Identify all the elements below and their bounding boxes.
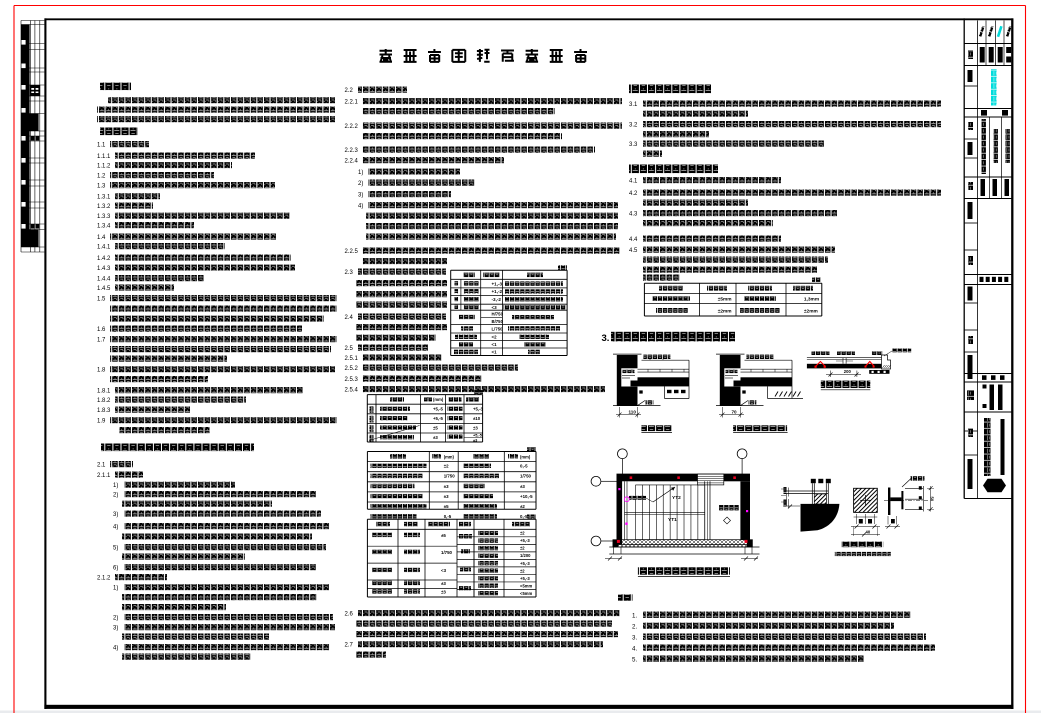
svg-text:+1,-2: +1,-2 <box>492 289 503 294</box>
svg-text:B/750: B/750 <box>492 319 504 324</box>
svg-text:+5,-3: +5,-3 <box>520 538 530 543</box>
svg-text:+5,-5: +5,-5 <box>433 406 444 411</box>
svg-text:1): 1) <box>113 586 118 592</box>
svg-text:2.: 2. <box>632 623 637 630</box>
svg-text:2.1.1: 2.1.1 <box>97 473 111 479</box>
svg-text:L/750: L/750 <box>492 327 504 332</box>
svg-text:4): 4) <box>358 204 363 210</box>
svg-text:±10: ±10 <box>473 416 481 421</box>
svg-text:1.4: 1.4 <box>97 235 106 241</box>
svg-text:1/200: 1/200 <box>520 553 531 558</box>
svg-text:1.4.2: 1.4.2 <box>97 256 111 262</box>
svg-text:1.3.3: 1.3.3 <box>97 214 111 220</box>
svg-text:1.3.4: 1.3.4 <box>97 224 111 230</box>
svg-text:<1: <1 <box>492 342 498 347</box>
svg-text:1/750: 1/750 <box>441 550 453 555</box>
svg-text:1.7: 1.7 <box>97 338 106 344</box>
svg-text:4): 4) <box>113 525 118 531</box>
svg-text:<1: <1 <box>492 349 498 354</box>
svg-text:+5,-3: +5,-3 <box>473 406 484 411</box>
svg-text:2.1.2: 2.1.2 <box>97 576 111 582</box>
svg-text:1/750: 1/750 <box>444 474 456 479</box>
svg-text:±2mm: ±2mm <box>718 308 732 314</box>
svg-text:5.: 5. <box>632 656 637 663</box>
svg-text:±5: ±5 <box>441 533 446 538</box>
svg-text:0,-5: 0,-5 <box>520 514 528 519</box>
svg-text:2.3: 2.3 <box>345 270 354 276</box>
svg-text:2): 2) <box>113 493 118 499</box>
svg-text:3.1: 3.1 <box>629 102 638 108</box>
svg-text:(mm): (mm) <box>444 454 455 459</box>
svg-text:±3: ±3 <box>473 425 478 430</box>
svg-text:+5,-3: +5,-3 <box>520 576 530 581</box>
svg-text:1.1.2: 1.1.2 <box>97 164 111 170</box>
svg-text:1.6: 1.6 <box>97 327 106 333</box>
svg-text:4.: 4. <box>632 645 637 652</box>
svg-text:<3: <3 <box>441 568 447 573</box>
svg-text:3.2: 3.2 <box>629 123 638 129</box>
svg-text:+1,-3: +1,-3 <box>492 281 503 286</box>
svg-text:2.2.4: 2.2.4 <box>345 159 359 165</box>
svg-text:±3: ±3 <box>433 435 438 440</box>
svg-text:2.2.5: 2.2.5 <box>345 249 359 255</box>
svg-text:1.: 1. <box>632 612 637 619</box>
svg-text:YT1: YT1 <box>668 517 677 523</box>
svg-text:±3: ±3 <box>444 494 449 499</box>
svg-text:1): 1) <box>113 483 118 489</box>
svg-text:3.3: 3.3 <box>629 142 638 148</box>
svg-text:±3: ±3 <box>444 484 449 489</box>
svg-text:200: 200 <box>844 369 852 374</box>
svg-text:0,-5: 0,-5 <box>520 464 528 469</box>
svg-text:2.1: 2.1 <box>97 463 106 469</box>
svg-text:1.5: 1.5 <box>97 297 106 303</box>
svg-text:2): 2) <box>113 616 118 622</box>
svg-text:4.1: 4.1 <box>629 179 638 185</box>
svg-text:-3,-2: -3,-2 <box>492 297 502 302</box>
svg-text:3): 3) <box>113 512 118 518</box>
svg-text:2.2: 2.2 <box>345 88 354 94</box>
svg-text:<5mm: <5mm <box>520 591 532 596</box>
svg-text:2.5.4: 2.5.4 <box>345 388 359 394</box>
svg-text:4.5: 4.5 <box>629 248 638 254</box>
svg-text:2.5: 2.5 <box>345 346 354 352</box>
svg-text:±2: ±2 <box>520 546 525 551</box>
svg-text:3.: 3. <box>602 333 610 344</box>
svg-text:2.6: 2.6 <box>345 612 354 618</box>
svg-text:±5mm: ±5mm <box>718 297 732 303</box>
svg-text:6): 6) <box>113 566 118 572</box>
svg-text:(mm): (mm) <box>433 397 444 402</box>
svg-text:4.4: 4.4 <box>629 237 638 243</box>
svg-text:1.9: 1.9 <box>97 419 106 425</box>
svg-text:0,-5: 0,-5 <box>444 514 452 519</box>
svg-text:2.7: 2.7 <box>345 643 354 649</box>
svg-text:1.4.5: 1.4.5 <box>97 286 111 292</box>
svg-text:2.5.1: 2.5.1 <box>345 356 359 362</box>
svg-text:1.3: 1.3 <box>97 184 106 190</box>
svg-text:(mm): (mm) <box>520 454 531 459</box>
svg-text:2.2.1: 2.2.1 <box>345 100 359 106</box>
svg-text:2.5.3: 2.5.3 <box>345 377 359 383</box>
svg-text:2): 2) <box>358 181 363 187</box>
svg-text:H/750: H/750 <box>492 312 504 317</box>
svg-text:1.1: 1.1 <box>97 143 106 149</box>
svg-text:1.2: 1.2 <box>97 174 106 180</box>
svg-text:±3: ±3 <box>441 581 446 586</box>
svg-text:40: 40 <box>866 529 871 534</box>
svg-text:70: 70 <box>732 409 738 414</box>
svg-text:±2: ±2 <box>520 568 525 573</box>
svg-text:YT2: YT2 <box>672 495 681 501</box>
svg-text:1,3mm: 1,3mm <box>804 297 819 303</box>
svg-text:2.4: 2.4 <box>345 315 354 321</box>
svg-text:+5,-3: +5,-3 <box>520 561 530 566</box>
svg-text:±2mm: ±2mm <box>804 308 818 314</box>
svg-text:2.2.2: 2.2.2 <box>345 124 359 130</box>
svg-text:±2: ±2 <box>520 531 525 536</box>
svg-text:1.4.1: 1.4.1 <box>97 245 111 251</box>
svg-text:±3: ±3 <box>520 484 525 489</box>
svg-text:<5mm: <5mm <box>520 583 532 588</box>
svg-text:1.3.2: 1.3.2 <box>97 204 111 210</box>
svg-text:4.2: 4.2 <box>629 191 638 197</box>
svg-text:<3: <3 <box>492 305 498 310</box>
svg-text:110: 110 <box>629 409 637 414</box>
svg-text:50: 50 <box>930 497 935 502</box>
svg-text:1.3.1: 1.3.1 <box>97 195 111 201</box>
svg-text:3.: 3. <box>632 634 637 641</box>
svg-text:1.8.1: 1.8.1 <box>97 389 111 395</box>
svg-text:2.5.2: 2.5.2 <box>345 366 359 372</box>
svg-text:3): 3) <box>113 626 118 632</box>
svg-text:±3: ±3 <box>441 589 446 594</box>
svg-text:1.1.1: 1.1.1 <box>97 154 111 160</box>
svg-text:1.8: 1.8 <box>97 368 106 374</box>
svg-text:4.3: 4.3 <box>629 212 638 218</box>
svg-text:±5: ±5 <box>444 504 449 509</box>
svg-text:3): 3) <box>358 193 363 199</box>
svg-text:5): 5) <box>113 546 118 552</box>
svg-text:4): 4) <box>113 646 118 652</box>
svg-text:1.4.4: 1.4.4 <box>97 277 111 283</box>
svg-text:±5: ±5 <box>433 425 438 430</box>
svg-text:1.4.3: 1.4.3 <box>97 266 111 272</box>
svg-text:1.8.3: 1.8.3 <box>97 408 111 414</box>
svg-text:+5,-5: +5,-5 <box>433 416 444 421</box>
svg-text:2.2.3: 2.2.3 <box>345 148 359 154</box>
svg-text:±2: ±2 <box>444 464 449 469</box>
svg-text:1): 1) <box>358 170 363 176</box>
svg-text:1/750: 1/750 <box>520 474 532 479</box>
svg-text:<2: <2 <box>492 334 498 339</box>
svg-text:±2: ±2 <box>520 504 525 509</box>
svg-text:1.8.2: 1.8.2 <box>97 398 111 404</box>
svg-text:+10,-5: +10,-5 <box>520 494 533 499</box>
